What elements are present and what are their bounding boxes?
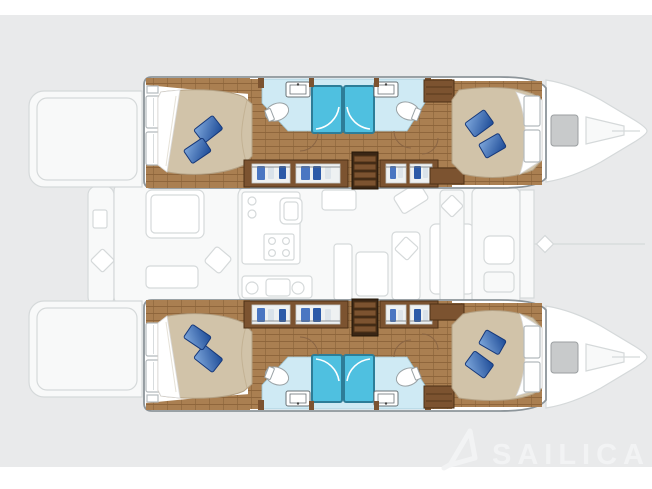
cockpit-seat	[146, 266, 198, 288]
watermark-brand-text: SAILICA	[492, 439, 650, 471]
cockpit-table	[146, 190, 204, 238]
starboard-hull	[29, 299, 647, 411]
stove	[264, 234, 294, 260]
aft-bench	[88, 186, 114, 306]
crossbeam	[520, 190, 534, 298]
foredeck-seat	[484, 236, 514, 264]
salon-counter	[322, 190, 356, 210]
floorplan-image: SAILICA	[0, 0, 652, 489]
salon-table	[356, 252, 388, 296]
salon-pillar	[334, 244, 352, 300]
port-hull	[29, 77, 647, 189]
catamaran-floorplan-svg: SAILICA	[0, 0, 652, 489]
